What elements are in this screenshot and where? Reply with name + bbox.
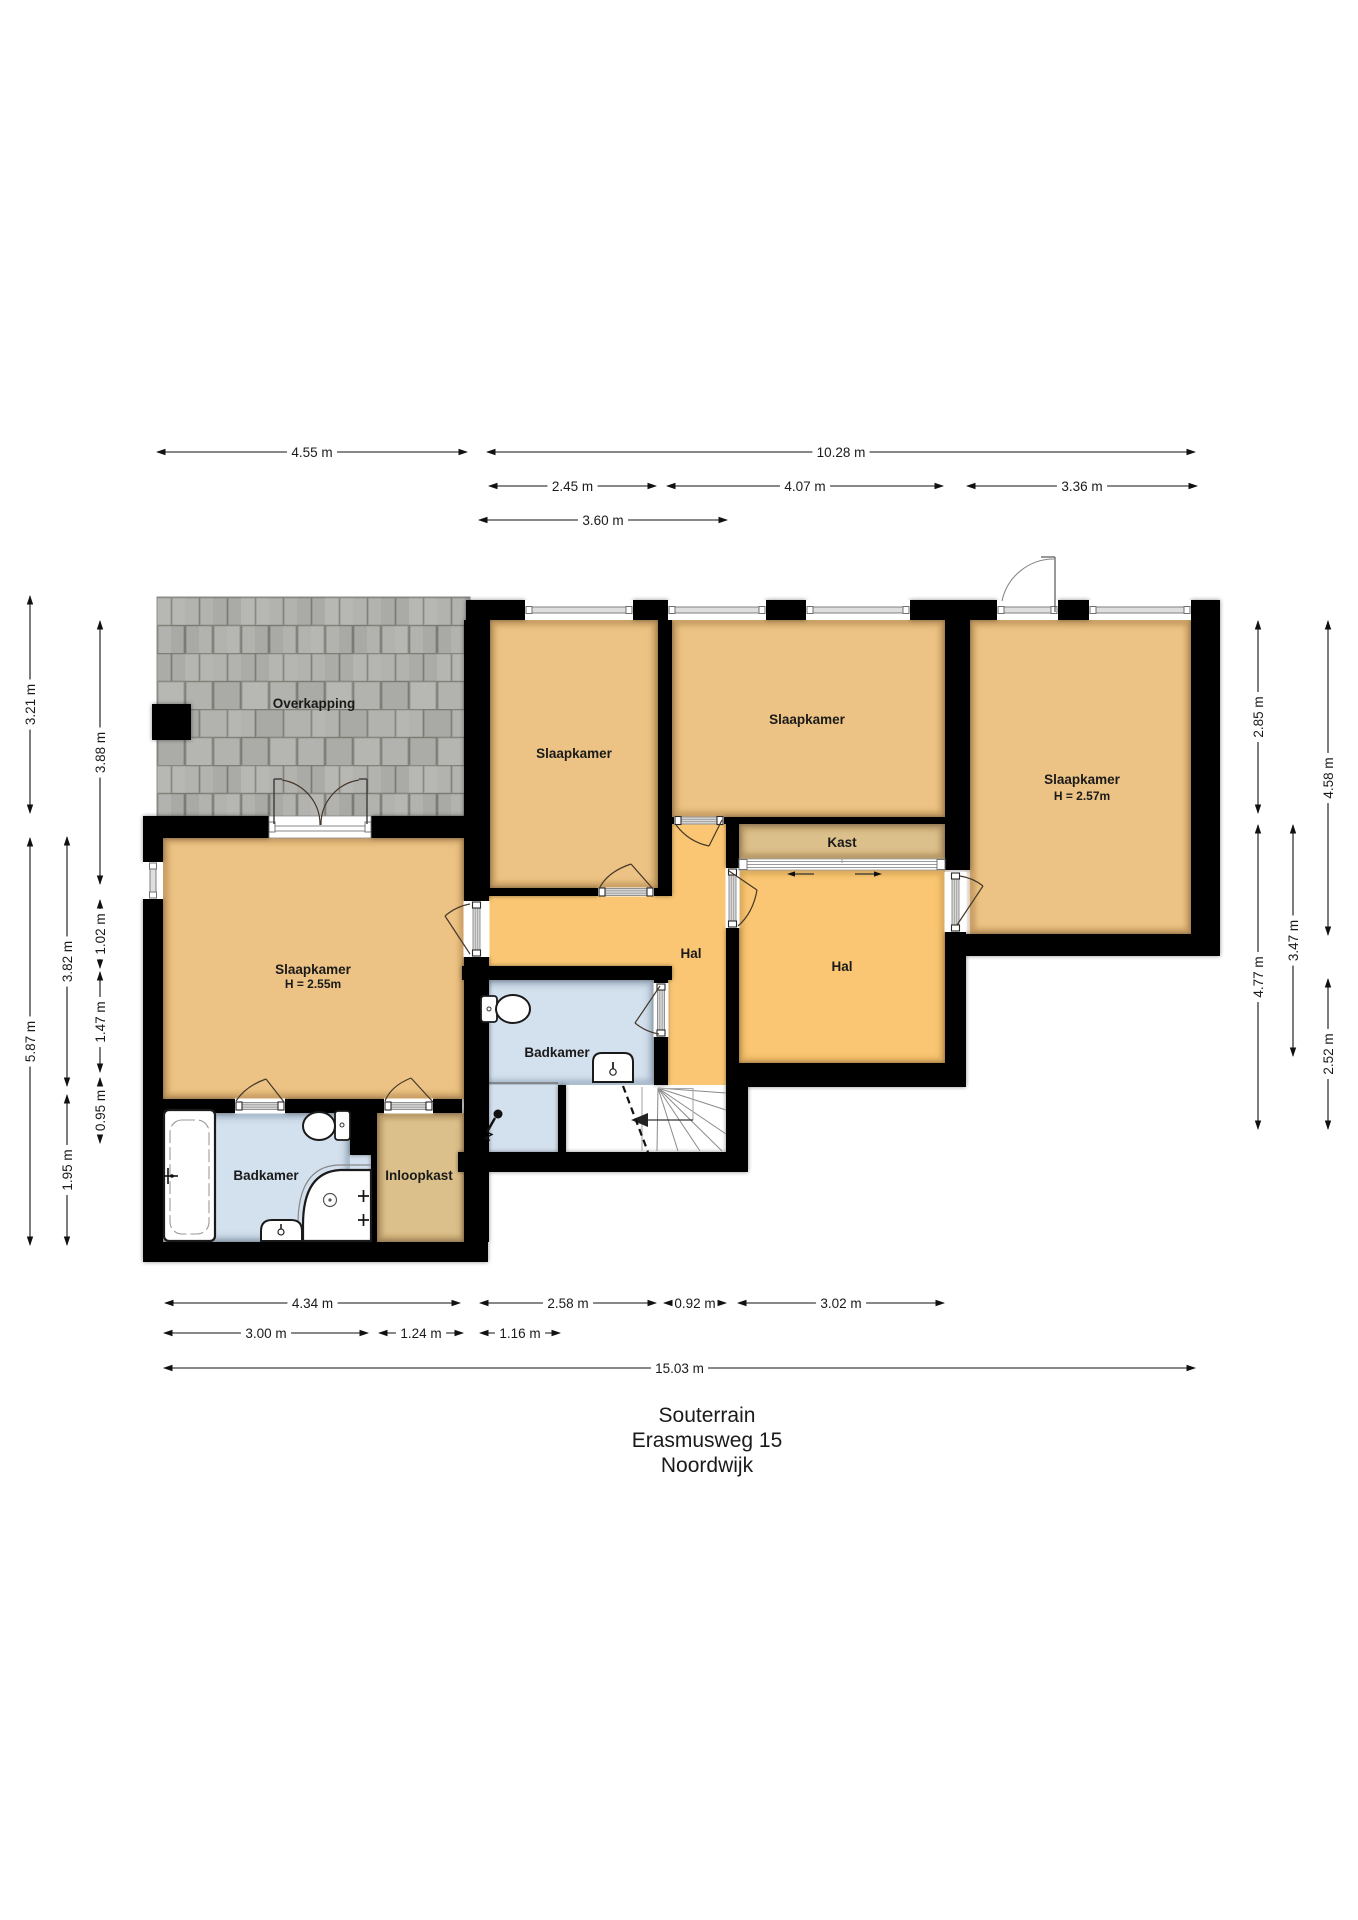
svg-text:5.87 m: 5.87 m xyxy=(23,1021,38,1062)
svg-text:2.85 m: 2.85 m xyxy=(1251,696,1266,737)
svg-text:1.02 m: 1.02 m xyxy=(93,913,108,954)
svg-text:1.24 m: 1.24 m xyxy=(400,1326,441,1341)
svg-text:Kast: Kast xyxy=(827,835,857,850)
svg-text:4.34 m: 4.34 m xyxy=(292,1296,333,1311)
svg-text:3.47 m: 3.47 m xyxy=(1286,920,1301,961)
svg-text:Hal: Hal xyxy=(831,959,852,974)
svg-text:H = 2.57m: H = 2.57m xyxy=(1054,789,1110,803)
svg-text:Badkamer: Badkamer xyxy=(524,1045,590,1060)
svg-text:Slaapkamer: Slaapkamer xyxy=(536,746,613,761)
svg-text:4.77 m: 4.77 m xyxy=(1251,956,1266,997)
svg-text:Slaapkamer: Slaapkamer xyxy=(1044,772,1121,787)
svg-text:0.92 m: 0.92 m xyxy=(674,1296,715,1311)
svg-text:1.95 m: 1.95 m xyxy=(60,1149,75,1190)
svg-text:4.07 m: 4.07 m xyxy=(784,479,825,494)
svg-text:3.00 m: 3.00 m xyxy=(245,1326,286,1341)
svg-text:4.58 m: 4.58 m xyxy=(1321,757,1336,798)
svg-text:1.47 m: 1.47 m xyxy=(93,1001,108,1042)
svg-text:4.55 m: 4.55 m xyxy=(291,445,332,460)
svg-text:2.52 m: 2.52 m xyxy=(1321,1033,1336,1074)
svg-text:Hal: Hal xyxy=(680,946,701,961)
svg-text:0.95 m: 0.95 m xyxy=(93,1090,108,1131)
svg-text:3.60 m: 3.60 m xyxy=(582,513,623,528)
svg-text:10.28 m: 10.28 m xyxy=(817,445,866,460)
svg-text:3.21 m: 3.21 m xyxy=(23,684,38,725)
svg-text:Erasmusweg 15: Erasmusweg 15 xyxy=(632,1429,783,1452)
svg-text:1.16 m: 1.16 m xyxy=(499,1326,540,1341)
svg-text:Badkamer: Badkamer xyxy=(233,1168,299,1183)
svg-text:15.03 m: 15.03 m xyxy=(655,1361,704,1376)
svg-text:2.58 m: 2.58 m xyxy=(547,1296,588,1311)
svg-text:3.02 m: 3.02 m xyxy=(820,1296,861,1311)
svg-text:Souterrain: Souterrain xyxy=(659,1404,756,1427)
svg-text:3.36 m: 3.36 m xyxy=(1061,479,1102,494)
svg-text:H = 2.55m: H = 2.55m xyxy=(285,977,341,991)
svg-text:2.45 m: 2.45 m xyxy=(552,479,593,494)
svg-text:Overkapping: Overkapping xyxy=(273,696,356,711)
svg-text:Slaapkamer: Slaapkamer xyxy=(769,712,846,727)
svg-text:Noordwijk: Noordwijk xyxy=(661,1454,754,1477)
svg-text:Inloopkast: Inloopkast xyxy=(385,1168,453,1183)
svg-text:3.82 m: 3.82 m xyxy=(60,941,75,982)
svg-text:3.88 m: 3.88 m xyxy=(93,732,108,773)
svg-text:Slaapkamer: Slaapkamer xyxy=(275,962,352,977)
